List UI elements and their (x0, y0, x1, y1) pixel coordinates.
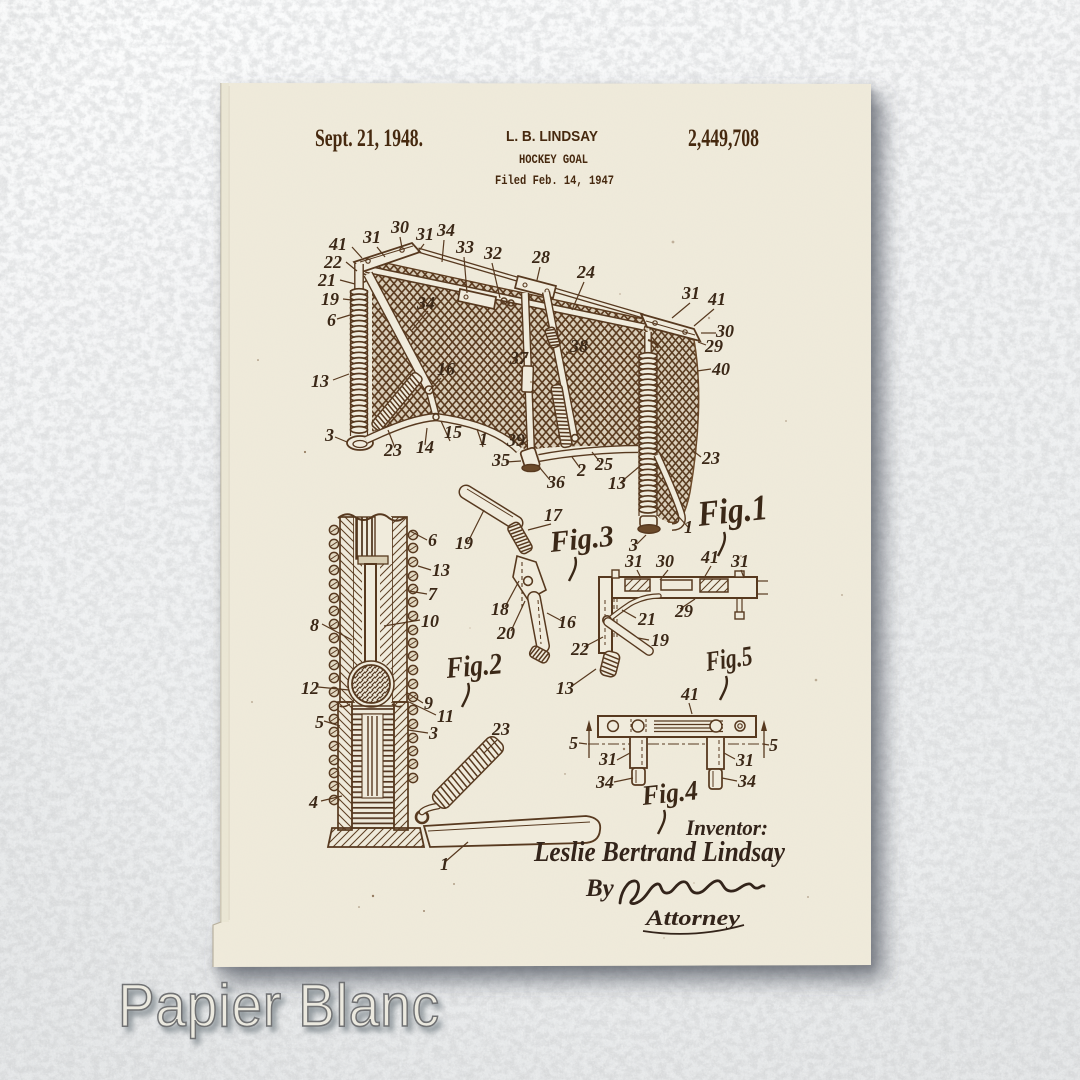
svg-text:Sept. 21, 1948.: Sept. 21, 1948. (315, 125, 423, 152)
svg-text:2,449,708: 2,449,708 (688, 125, 759, 152)
svg-text:25: 25 (594, 454, 613, 474)
svg-text:28: 28 (531, 247, 550, 267)
svg-text:14: 14 (416, 437, 434, 457)
svg-text:13: 13 (432, 560, 450, 580)
svg-text:13: 13 (608, 473, 626, 493)
svg-text:15: 15 (444, 422, 462, 442)
svg-text:22: 22 (570, 639, 589, 659)
svg-text:35: 35 (491, 450, 510, 470)
svg-text:1: 1 (684, 517, 693, 537)
svg-text:37: 37 (509, 348, 529, 368)
svg-text:31: 31 (362, 227, 381, 247)
svg-text:11: 11 (437, 706, 454, 726)
svg-text:8: 8 (310, 615, 319, 635)
svg-text:16: 16 (437, 359, 455, 379)
svg-text:22: 22 (323, 252, 342, 272)
svg-text:17: 17 (544, 505, 563, 525)
svg-text:19: 19 (455, 533, 473, 553)
svg-text:12: 12 (301, 678, 319, 698)
svg-text:34: 34 (436, 220, 455, 240)
svg-text:19: 19 (651, 630, 669, 650)
svg-text:13: 13 (311, 371, 329, 391)
svg-text:HOCKEY GOAL: HOCKEY GOAL (519, 152, 588, 167)
svg-text:41: 41 (680, 684, 699, 704)
svg-text:31: 31 (598, 749, 617, 769)
svg-text:5: 5 (315, 712, 324, 732)
svg-text:L. B. LINDSAY: L. B. LINDSAY (506, 128, 598, 145)
svg-text:Papier Blanc: Papier Blanc (118, 972, 440, 1039)
svg-text:21: 21 (637, 609, 656, 629)
svg-text:38: 38 (569, 336, 588, 356)
svg-text:Leslie Bertrand Lindsay: Leslie Bertrand Lindsay (533, 837, 785, 868)
svg-text:32: 32 (483, 243, 502, 263)
svg-text:23: 23 (491, 719, 510, 739)
svg-text:2: 2 (576, 460, 586, 480)
svg-text:3: 3 (428, 723, 438, 743)
svg-text:23: 23 (383, 440, 402, 460)
svg-text:34: 34 (416, 293, 435, 313)
svg-text:23: 23 (701, 448, 720, 468)
svg-text:31: 31 (415, 224, 434, 244)
svg-text:20: 20 (496, 623, 515, 643)
svg-text:36: 36 (546, 472, 565, 492)
svg-text:1: 1 (440, 854, 449, 874)
svg-text:19: 19 (321, 289, 339, 309)
svg-text:41: 41 (700, 547, 719, 567)
svg-text:10: 10 (421, 611, 439, 631)
svg-text:4: 4 (308, 792, 318, 812)
svg-text:16: 16 (558, 612, 576, 632)
svg-text:Fig.1: Fig.1 (695, 487, 770, 534)
svg-text:31: 31 (735, 750, 754, 770)
svg-text:6: 6 (327, 310, 336, 330)
svg-text:13: 13 (556, 678, 574, 698)
svg-text:29: 29 (674, 601, 693, 621)
svg-text:Fig.5: Fig.5 (703, 641, 755, 678)
svg-text:33: 33 (455, 237, 474, 257)
svg-text:34: 34 (595, 772, 614, 792)
svg-text:24: 24 (576, 262, 595, 282)
svg-text:31: 31 (730, 551, 749, 571)
svg-text:34: 34 (737, 771, 756, 791)
svg-text:6: 6 (428, 530, 437, 550)
svg-text:3: 3 (324, 425, 334, 445)
svg-text:5: 5 (569, 733, 578, 753)
svg-text:21: 21 (317, 270, 336, 290)
svg-text:29: 29 (704, 336, 723, 356)
svg-text:18: 18 (491, 599, 509, 619)
svg-text:Fig.2: Fig.2 (444, 647, 504, 685)
svg-text:Fig.3: Fig.3 (547, 519, 615, 559)
svg-text:31: 31 (681, 283, 700, 303)
svg-text:30: 30 (390, 217, 409, 237)
svg-text:5: 5 (769, 735, 778, 755)
svg-text:41: 41 (328, 234, 347, 254)
svg-text:40: 40 (711, 359, 730, 379)
svg-text:By: By (585, 875, 615, 902)
svg-text:1: 1 (479, 429, 488, 449)
svg-text:30: 30 (655, 551, 674, 571)
svg-text:Filed Feb. 14, 1947: Filed Feb. 14, 1947 (495, 173, 614, 188)
svg-text:7: 7 (428, 584, 438, 604)
svg-text:Attorney: Attorney (644, 905, 741, 930)
svg-text:Fig.4: Fig.4 (640, 775, 700, 812)
svg-text:39: 39 (506, 430, 525, 450)
svg-text:31: 31 (624, 551, 643, 571)
svg-text:41: 41 (707, 289, 726, 309)
